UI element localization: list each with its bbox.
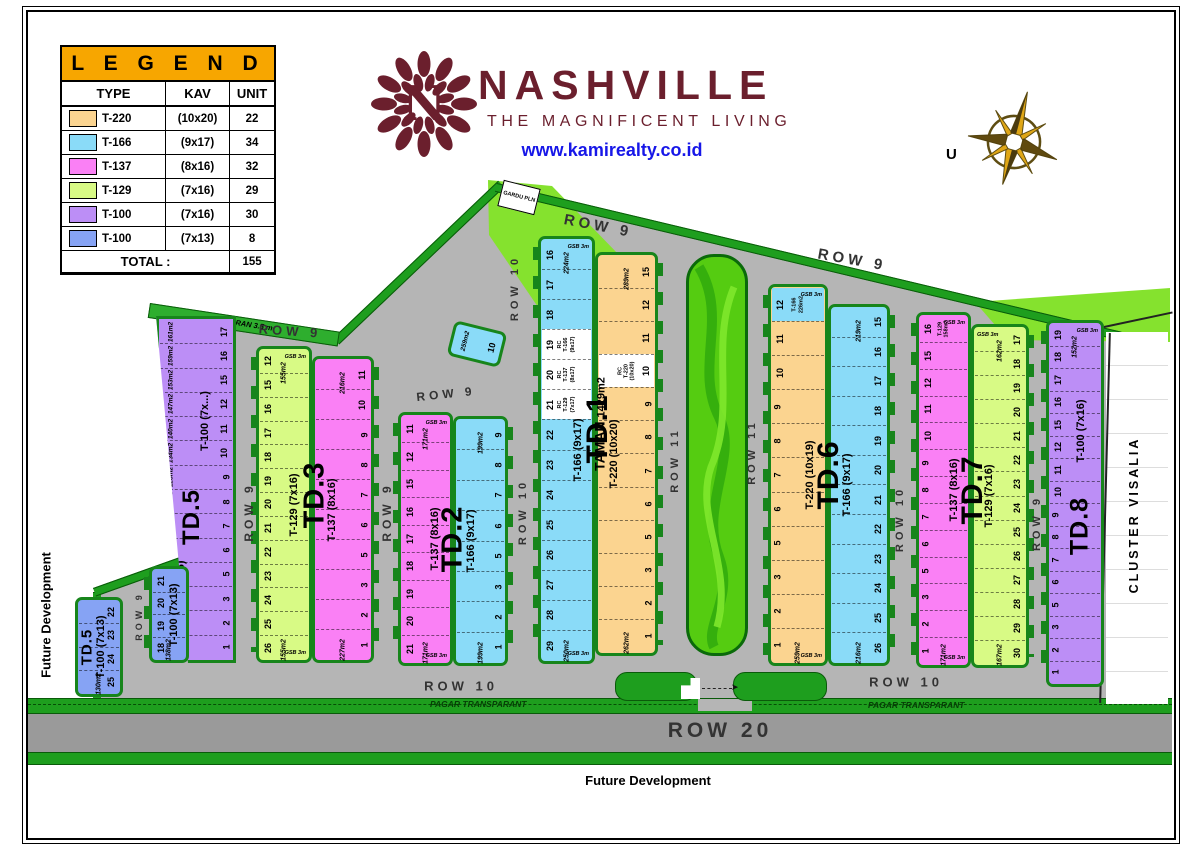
lot-number: 25 — [263, 619, 273, 629]
lot-number: 20 — [156, 598, 166, 608]
lot-number: 5 — [1051, 602, 1061, 607]
lot-number: 8 — [643, 435, 653, 440]
legend-table: TYPE KAV UNIT T-220(10x20)22T-166(9x17)3… — [62, 82, 274, 273]
cluster-visalia-label: CLUSTER VISALIA — [1127, 437, 1141, 594]
lot-number: 3 — [359, 582, 369, 587]
lot-TD.2-2[interactable]: 2 — [457, 601, 504, 631]
legend-type-label: T-100 — [102, 233, 131, 245]
lot-number: 18 — [156, 643, 166, 653]
lot-number: 3 — [1051, 625, 1061, 630]
type-label-TD.5: T-100 (7x...) — [199, 391, 211, 451]
lot-number: 19 — [873, 436, 883, 446]
lot-number: 23 — [106, 630, 116, 640]
block-TD.2: 111215161718192021GSB 3mGSB 3m171m2171m2… — [398, 412, 508, 666]
strip-area-top: 216m2 — [340, 372, 347, 394]
lot-number: 16 — [219, 351, 229, 361]
lot-TD.3-5[interactable]: 5 — [316, 539, 370, 569]
lot-number: 16 — [405, 507, 415, 517]
lot-TD.2-3[interactable]: 3 — [457, 571, 504, 601]
legend-kav-value: (10x20) — [165, 106, 229, 131]
lot-number: 11 — [357, 370, 367, 380]
lot-number: 25 — [1012, 527, 1022, 537]
row20-road — [28, 712, 1172, 752]
lot-number: 15 — [641, 267, 651, 277]
lot-number: 18 — [545, 310, 555, 320]
lot-number: 3 — [493, 584, 503, 589]
strip-area-bottom: 155m2 — [281, 639, 288, 661]
lot-TD.2-20[interactable]: 20 — [402, 607, 449, 634]
lot-number: 18 — [873, 406, 883, 416]
lot-number: 29 — [1012, 623, 1022, 633]
road-label-row-10-10: ROW 10 — [894, 486, 906, 552]
lot-TD.3-2[interactable]: 2 — [316, 599, 370, 629]
legend-unit-value: 32 — [230, 155, 274, 179]
lot-TD.6-22[interactable]: 22 — [832, 514, 886, 544]
lot-number: 18 — [405, 561, 415, 571]
lot-number: 11 — [641, 333, 651, 343]
lot-TD.1-27[interactable]: 27 — [542, 570, 591, 600]
lot-TD.6-10[interactable]: 10 — [772, 355, 824, 389]
legend-panel: L E G E N D TYPE KAV UNIT T-220(10x20)22… — [60, 45, 276, 275]
lot-number: 3 — [643, 567, 653, 572]
lot-TD.1-5[interactable]: 5 — [599, 520, 654, 553]
lot-number: 11 — [405, 424, 415, 434]
lot-TD.7-21[interactable]: 21 — [975, 423, 1025, 447]
legend-swatch-T-100 — [69, 230, 97, 247]
legend-unit-value: 34 — [230, 131, 274, 155]
lot-number: 16 — [1053, 397, 1063, 407]
lot-number: 19 — [1012, 383, 1022, 393]
lot-TD.5-16[interactable]: 16159m2 — [160, 343, 232, 367]
block-TD.5A: 21201918138m2T-100 (7x13) — [149, 566, 189, 663]
legend-type-label: T-100 — [102, 209, 131, 221]
lot-number: 1 — [1051, 670, 1061, 675]
legend-swatch-T-137 — [69, 158, 97, 175]
carport-tabs — [507, 427, 513, 655]
lot-number: 8 — [493, 463, 503, 468]
lot-number: 5 — [359, 552, 369, 557]
lot-number: 12 — [405, 452, 415, 462]
lot-TD.7-2[interactable]: 2 — [920, 610, 967, 637]
lot-number: 7 — [221, 523, 231, 528]
lot-number: 21 — [405, 644, 415, 654]
lot-number: 11 — [219, 424, 229, 434]
lot-number: 12 — [923, 378, 933, 388]
lot-number: 21 — [263, 523, 273, 533]
lot-number: 23 — [263, 571, 273, 581]
strip-area-top: 199m2 — [477, 432, 484, 454]
entrance-island-right — [733, 672, 827, 701]
entrance-arrow-line — [702, 688, 732, 689]
road-label-row-9-12: ROW 9 — [134, 591, 144, 641]
lot-number: 5 — [221, 572, 231, 577]
lot-TD.3-17[interactable]: 17 — [260, 421, 308, 445]
lot-number: 20 — [1012, 407, 1022, 417]
lot-number: 12 — [641, 300, 651, 310]
lot-number: 9 — [1051, 512, 1061, 517]
lot-number: 17 — [545, 280, 555, 290]
lot-TD.8-1[interactable]: 1 — [1050, 661, 1100, 684]
lot-area: 153m2 — [168, 370, 175, 390]
lot-TD.7-3[interactable]: 3 — [920, 583, 967, 610]
carport-tabs — [911, 323, 917, 657]
lot-number: 22 — [106, 607, 116, 617]
strip-area-bottom: 216m2 — [856, 642, 863, 664]
taman-park — [686, 254, 748, 656]
legend-kav-value: (7x13) — [165, 227, 229, 251]
lot-TD.6-25[interactable]: 25 — [832, 603, 886, 633]
legend-header-unit: UNIT — [230, 82, 274, 106]
lot-number: 26 — [263, 643, 273, 653]
compass-rose-icon — [958, 86, 1070, 198]
lot-number: 16 — [873, 347, 883, 357]
lot-TD.3-3[interactable]: 3 — [316, 569, 370, 599]
lot-TD.3-9[interactable]: 9 — [316, 419, 370, 449]
block-TD.6: 12T-166 226m2111098765321GSB 3mGSB 3m259… — [768, 284, 890, 666]
legend-kav-value: (7x16) — [165, 179, 229, 203]
lot-number: 15 — [405, 479, 415, 489]
lot-number: 8 — [221, 499, 231, 504]
road-label-row-9-4: ROW 9 — [242, 482, 256, 541]
road-label-row-20-15: ROW 20 — [668, 719, 773, 743]
lot-number: 12 — [263, 356, 273, 366]
lot-number: 23 — [873, 554, 883, 564]
lot-number: 5 — [921, 568, 931, 573]
lot-TD.1-26[interactable]: 26 — [542, 540, 591, 570]
lot-number: 15 — [1053, 420, 1063, 430]
lot-number: 20 — [873, 465, 883, 475]
lot-number: 6 — [359, 522, 369, 527]
lot-TD.6-2[interactable]: 2 — [772, 594, 824, 628]
lot-TD.7-27[interactable]: 27 — [975, 568, 1025, 592]
block-TD.5B: 22232425130m2T-100 (7x13)TD.5 — [75, 597, 123, 697]
lot-number: 24 — [106, 654, 116, 664]
lot-TD.7-6[interactable]: 6 — [920, 530, 967, 557]
lot-number: 7 — [359, 492, 369, 497]
lot-TD.1-28[interactable]: 28 — [542, 600, 591, 630]
lot-TD2-10-10[interactable]: 10259m2 — [451, 325, 502, 363]
lot-TD.6-24[interactable]: 24 — [832, 573, 886, 603]
lot-number: 19 — [263, 476, 273, 486]
strip-area-top: 224m2 — [563, 252, 570, 274]
lot-number: 22 — [545, 430, 555, 440]
lot-TD.1-24[interactable]: 24 — [542, 480, 591, 510]
lot-TD.3-22[interactable]: 22 — [260, 540, 308, 564]
lot-TD.6-5[interactable]: 5 — [772, 526, 824, 560]
lot-number: 6 — [921, 541, 931, 546]
block-TD.3: 12151617181920212223242526GSB 3mGSB 3m15… — [256, 340, 374, 663]
lot-number: 17 — [1012, 335, 1022, 345]
siteplan-page: SALURAN 3.5 m GARDU PLN PAGAR TRANSPARAN… — [0, 0, 1200, 848]
lot-number: 11 — [1053, 465, 1063, 475]
lot-number: 20 — [405, 616, 415, 626]
lot-number: 6 — [643, 501, 653, 506]
lot-number: 16 — [263, 404, 273, 414]
block-label-TD.3: TD.3 — [299, 462, 332, 529]
lot-number: 28 — [545, 610, 555, 620]
lot-number: 21 — [873, 495, 883, 505]
lot-TD.7-11[interactable]: 11 — [920, 396, 967, 423]
lot-number: 19 — [156, 621, 166, 631]
lot-number: 16 — [545, 250, 555, 260]
strip-area-bottom: 262m2 — [623, 632, 630, 654]
lot-number: 22 — [1012, 455, 1022, 465]
legend-unit-value: 30 — [230, 203, 274, 227]
block-label-TD.8: TD.8 — [1065, 496, 1094, 554]
lot-number: 12 — [219, 399, 229, 409]
lot-area: 115m2 — [167, 516, 174, 536]
lot-number: 7 — [643, 468, 653, 473]
carport-tabs — [533, 247, 539, 653]
lot-TD.7-15[interactable]: 15 — [920, 342, 967, 369]
type-label-TD.8: T-100 (7x16) — [1075, 400, 1087, 463]
lot-number: 24 — [873, 583, 883, 593]
legend-row-0: T-220(10x20)22 — [62, 106, 274, 131]
lot-area: 140m2 — [168, 419, 175, 439]
legend-title: L E G E N D — [62, 47, 274, 82]
lot-TD.6-23[interactable]: 23 — [832, 544, 886, 574]
entrance-arrow-icon: ➤ — [731, 682, 739, 693]
lot-number: 15 — [873, 317, 883, 327]
lot-number: 7 — [1051, 557, 1061, 562]
lot-TD.7-20[interactable]: 20 — [975, 399, 1025, 423]
pagar-label-left: PAGAR TRANSPARANT — [430, 699, 527, 709]
lot-area: 259m2 — [460, 330, 472, 351]
gsb-label-top: GSB 3m — [944, 320, 965, 326]
legend-swatch-T-100 — [69, 206, 97, 223]
lot-number: 17 — [263, 428, 273, 438]
lot-number: 17 — [405, 534, 415, 544]
road-label-row-11-8: ROW 11 — [669, 427, 681, 493]
lot-TD.2-8[interactable]: 8 — [457, 449, 504, 479]
lot-number: 12 — [1053, 442, 1063, 452]
lot-TD.1-25[interactable]: 25 — [542, 510, 591, 540]
lot-TD.5-9[interactable]: 9128m2 — [160, 465, 232, 489]
lot-number: 9 — [643, 402, 653, 407]
lot-number: 2 — [359, 612, 369, 617]
lot-number: 8 — [359, 462, 369, 467]
carport-tabs — [657, 263, 663, 645]
lot-TD.7-5[interactable]: 5 — [920, 557, 967, 584]
lot-TD.2-19[interactable]: 19 — [402, 580, 449, 607]
lot-number: 15 — [923, 351, 933, 361]
lot-number: 1 — [221, 645, 231, 650]
lot-TD.6-11[interactable]: 11 — [772, 321, 824, 355]
legend-total-value: 155 — [230, 251, 274, 273]
strip-area-bottom: 250m2 — [563, 640, 570, 662]
lot-TD.6-18[interactable]: 18 — [832, 396, 886, 426]
lot-TD.7-19[interactable]: 19 — [975, 375, 1025, 399]
strip-area-bottom: 171m2 — [422, 642, 429, 664]
lot-number: 7 — [921, 514, 931, 519]
legend-type-label: T-166 — [102, 137, 131, 149]
lot-TD.7-26[interactable]: 26 — [975, 544, 1025, 568]
type-label-TD.5A: T-100 (7x13) — [168, 583, 180, 646]
future-development-left: Future Development — [39, 552, 54, 678]
lot-TD.6-17[interactable]: 17 — [832, 366, 886, 396]
lot-number: 22 — [263, 547, 273, 557]
lot-number: 22 — [873, 524, 883, 534]
lot-number: 17 — [219, 327, 229, 337]
lot-number: 8 — [773, 438, 783, 443]
block-label-TD.7: TD.7 — [956, 455, 990, 524]
taman-label: TAMAN 1429m2 — [592, 377, 607, 471]
strip-area-bottom: 227m2 — [340, 639, 347, 661]
lot-TD.1-3[interactable]: 3 — [599, 553, 654, 586]
lot-number: 10 — [485, 342, 497, 354]
lot-number: 5 — [773, 541, 783, 546]
lot-number: 24 — [1012, 503, 1022, 513]
legend-swatch-T-220 — [69, 110, 97, 127]
lot-number: 26 — [1012, 551, 1022, 561]
lot-TD.6-3[interactable]: 3 — [772, 560, 824, 594]
lot-number: 17 — [873, 376, 883, 386]
lot-number: 24 — [545, 490, 555, 500]
lot-TD.8-6[interactable]: 6 — [1050, 571, 1100, 594]
lot-number: 1 — [493, 645, 503, 650]
lot-TD.1-12[interactable]: 12 — [599, 288, 654, 321]
lot-TD.7-28[interactable]: 28 — [975, 592, 1025, 616]
strip-area-top: 152m2 — [1072, 336, 1079, 358]
lot-number: 9 — [921, 461, 931, 466]
lot-number: 10 — [219, 448, 229, 458]
logo-monogram: N — [402, 76, 446, 132]
strip-area-bottom: 199m2 — [477, 642, 484, 664]
lot-number: 10 — [923, 431, 933, 441]
carport-tabs — [144, 577, 150, 652]
lot-number: 23 — [1012, 479, 1022, 489]
lot-number: 9 — [773, 404, 783, 409]
lot-TD.5-15[interactable]: 15153m2 — [160, 368, 232, 392]
nashville-logo-rosette: N — [368, 48, 480, 160]
lot-TD.3-16[interactable]: 16 — [260, 397, 308, 421]
lot-TD.7-29[interactable]: 29 — [975, 616, 1025, 640]
lot-number: 5 — [493, 554, 503, 559]
lot-number: 25 — [545, 520, 555, 530]
block-label-TD.6: TD.6 — [812, 440, 846, 509]
lot-number: 18 — [1012, 359, 1022, 369]
lot-number: 29 — [545, 641, 555, 651]
lot-TD.8-2[interactable]: 2 — [1050, 638, 1100, 661]
lot-number: 15 — [219, 375, 229, 385]
lot-TD.2-15[interactable]: 15 — [402, 470, 449, 497]
legend-type-label: T-129 — [102, 185, 131, 197]
brand-tagline: THE MAGNIFICENT LIVING — [487, 113, 791, 131]
lot-area: 134m2 — [168, 443, 175, 463]
strip-area-bottom: 171m2 — [940, 644, 947, 666]
lot-area: 121m2 — [168, 491, 175, 511]
lot-number: 5 — [643, 534, 653, 539]
lot-number: 11 — [923, 405, 933, 415]
pagar-green-strip — [28, 698, 1172, 714]
lot-number: 25 — [873, 613, 883, 623]
lot-number: 1 — [643, 633, 653, 638]
legend-total-label: TOTAL : — [62, 251, 230, 273]
legend-header-kav: KAV — [165, 82, 229, 106]
block-TD.7: 16T-129 158m21512111098765321GSB 3mGSB 3… — [916, 312, 1029, 668]
lot-TD.8-5[interactable]: 5 — [1050, 593, 1100, 616]
lot-TD.3-24[interactable]: 24 — [260, 587, 308, 611]
lot-number: 10 — [1053, 487, 1063, 497]
gsb-label-top: GSB 3m — [977, 332, 998, 338]
lot-number: 1 — [773, 643, 783, 648]
lot-TD.1-6[interactable]: 6 — [599, 487, 654, 520]
road-label-row-9-11: ROW 9 — [1031, 495, 1043, 551]
lot-TD.3-23[interactable]: 23 — [260, 564, 308, 588]
lot-number: 15 — [263, 380, 273, 390]
lot-number: 18 — [263, 452, 273, 462]
lot-number: 9 — [493, 432, 503, 437]
gsb-label-bottom: GSB 3m — [568, 651, 589, 657]
gsb-label-top: GSB 3m — [426, 420, 447, 426]
lot-number: 2 — [493, 614, 503, 619]
legend-kav-value: (7x16) — [165, 203, 229, 227]
legend-type-label: T-220 — [102, 113, 131, 125]
lot-number: 2 — [1051, 647, 1061, 652]
lot-number: 18 — [1053, 352, 1063, 362]
type-label-TD.5B: T-100 (7x13) — [95, 616, 107, 679]
legend-row-1: T-166(9x17)34 — [62, 131, 274, 155]
gsb-label-top: GSB 3m — [568, 244, 589, 250]
lot-TD.7-12[interactable]: 12 — [920, 369, 967, 396]
lot-TD.8-17[interactable]: 17 — [1050, 368, 1100, 391]
block-label-TD.5: TD.5 — [178, 489, 206, 545]
lot-TD.5-12[interactable]: 12147m2 — [160, 392, 232, 416]
lot-TD.7-10[interactable]: 10 — [920, 422, 967, 449]
lot-number: 9 — [221, 475, 231, 480]
block-label-TD.5B: TD.5 — [78, 629, 95, 666]
lot-area: 147m2 — [168, 394, 175, 414]
lot-number: 11 — [775, 334, 785, 344]
website-link[interactable]: www.kamirealty.co.id — [521, 140, 702, 161]
legend-row-3: T-129(7x16)29 — [62, 179, 274, 203]
lot-number: 2 — [921, 622, 931, 627]
lot-TD.5-10[interactable]: 10134m2 — [160, 440, 232, 464]
lot-number: 27 — [1012, 575, 1022, 585]
lot-number: 8 — [1051, 535, 1061, 540]
road-label-row-11-9: ROW 11 — [746, 419, 758, 485]
lot-TD.8-3[interactable]: 3 — [1050, 616, 1100, 639]
lot-number: 6 — [493, 523, 503, 528]
lot-number: 24 — [263, 595, 273, 605]
lot-number: 3 — [921, 595, 931, 600]
lot-number: 26 — [545, 550, 555, 560]
block-TD.8: 191817161512111098765321GSB 3m152m2T-100… — [1046, 320, 1104, 687]
lot-TD.6-9[interactable]: 9 — [772, 389, 824, 423]
road-label-row-10-7: ROW 10 — [517, 479, 529, 545]
lot-number: 6 — [773, 507, 783, 512]
lot-number: 7 — [773, 473, 783, 478]
lot-TD.5-11[interactable]: 11140m2 — [160, 416, 232, 440]
compass-north-label: U — [946, 146, 957, 163]
lot-number: 3 — [773, 575, 783, 580]
lot-number: 23 — [545, 460, 555, 470]
strip-area-top: 162m2 — [997, 340, 1004, 362]
carport-tabs — [763, 295, 769, 655]
lot-TD.3-25[interactable]: 25 — [260, 611, 308, 635]
lot-TD.1-2[interactable]: 2 — [599, 586, 654, 619]
lot-number: 7 — [493, 493, 503, 498]
lot-TD.5-17[interactable]: 17161m2 — [160, 320, 232, 343]
gsb-label-bottom: GSB 3m — [801, 653, 822, 659]
lot-area: 161m2 — [168, 322, 175, 342]
brand-name: NASHVILLE — [478, 62, 773, 109]
lot-area: 128m2 — [168, 467, 175, 487]
legend-unit-value: 29 — [230, 179, 274, 203]
lot-number: 25 — [106, 677, 116, 687]
strip-area-top: 219m2 — [856, 320, 863, 342]
lot-number: 2 — [221, 621, 231, 626]
